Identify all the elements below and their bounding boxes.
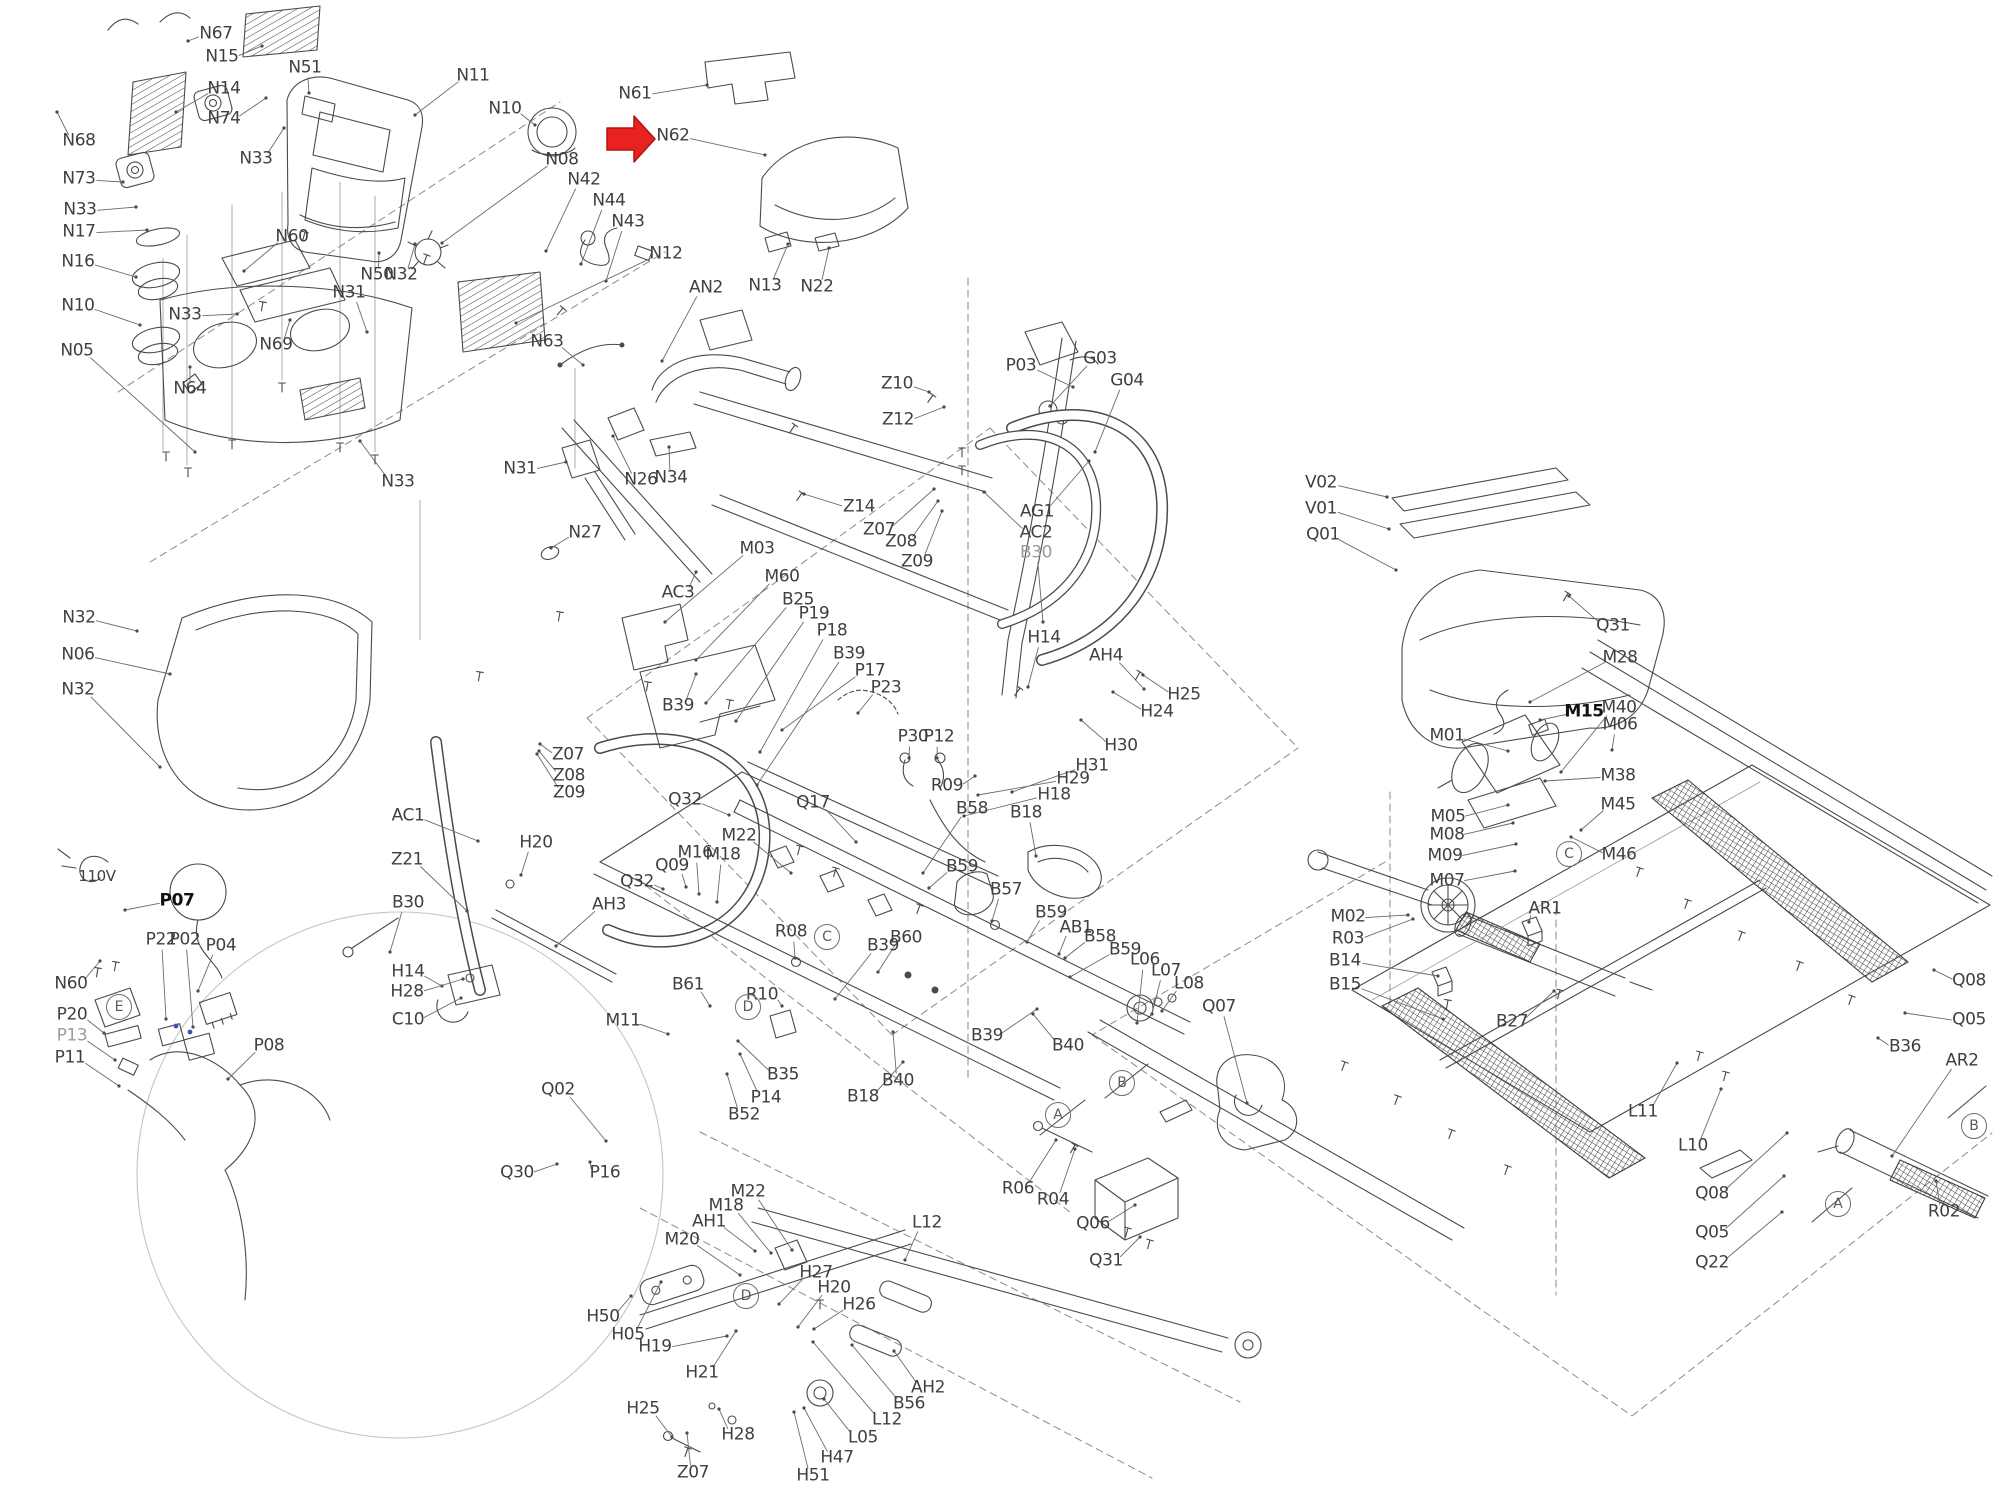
- part-label-q31: Q31: [1089, 1253, 1123, 1270]
- part-label-n32: N32: [62, 610, 95, 627]
- section-letter-a: A: [1045, 1102, 1071, 1128]
- part-label-n31: N31: [332, 285, 365, 302]
- part-label-m08: M08: [1429, 827, 1464, 844]
- part-label-m03: M03: [739, 541, 774, 558]
- part-label-q06: Q06: [1076, 1216, 1110, 1233]
- part-label-r03: R03: [1332, 931, 1364, 948]
- part-label-z09: Z09: [901, 554, 933, 571]
- part-label-b30: B30: [392, 895, 424, 912]
- part-label-p03: P03: [1006, 358, 1037, 375]
- section-letter-b: B: [1961, 1113, 1987, 1139]
- part-label-q17: Q17: [796, 795, 830, 812]
- part-label-l08: L08: [1174, 976, 1204, 993]
- part-label-h14: H14: [391, 964, 424, 981]
- part-label-z21: Z21: [391, 852, 423, 869]
- part-label-p11: P11: [55, 1050, 86, 1067]
- part-label-n06: N06: [61, 647, 94, 664]
- part-label-m11: M11: [605, 1013, 640, 1030]
- part-label-b61: B61: [672, 977, 704, 994]
- part-label-m46: M46: [1601, 847, 1636, 864]
- part-label-n61: N61: [618, 86, 651, 103]
- part-label-r04: R04: [1037, 1192, 1069, 1209]
- motor-deck-parts: [1088, 468, 1992, 1240]
- part-label-r02: R02: [1928, 1204, 1960, 1221]
- incline-frame-parts: [638, 1208, 1261, 1452]
- part-label-b36: B36: [1889, 1039, 1921, 1056]
- part-label-n64: N64: [173, 381, 206, 398]
- part-label-b14: B14: [1329, 953, 1361, 970]
- part-label-b60: B60: [890, 930, 922, 947]
- part-label-n22: N22: [800, 279, 833, 296]
- part-label-n27: N27: [568, 525, 601, 542]
- part-label-m60: M60: [764, 569, 799, 586]
- part-label-q08: Q08: [1952, 973, 1986, 990]
- part-label-b59: B59: [946, 859, 978, 876]
- section-letter-a: A: [1825, 1191, 1851, 1217]
- part-label-c10: C10: [392, 1012, 424, 1029]
- part-label-q08: Q08: [1695, 1186, 1729, 1203]
- part-label-n15: N15: [205, 49, 238, 66]
- part-label-n17: N17: [62, 224, 95, 241]
- part-label-h28: H28: [721, 1427, 754, 1444]
- part-label-v01: V01: [1305, 501, 1337, 518]
- part-label-z07: Z07: [677, 1465, 709, 1482]
- part-label-n33: N33: [239, 151, 272, 168]
- part-label-p12: P12: [924, 729, 955, 746]
- part-label-h26: H26: [842, 1297, 875, 1314]
- part-label-h50: H50: [586, 1309, 619, 1326]
- part-label-h51: H51: [796, 1468, 829, 1485]
- diagram-line-art: [0, 0, 1999, 1500]
- section-letter-d: D: [735, 994, 761, 1020]
- part-label-m15: M15: [1564, 704, 1603, 721]
- part-label-n33: N33: [381, 474, 414, 491]
- part-label-ah1: AH1: [692, 1214, 726, 1231]
- part-label-q09: Q09: [655, 858, 689, 875]
- part-label-l10: L10: [1678, 1138, 1708, 1155]
- part-label-ac3: AC3: [662, 585, 695, 602]
- part-label-q05: Q05: [1695, 1225, 1729, 1242]
- part-label-n68: N68: [62, 133, 95, 150]
- part-label-n74: N74: [207, 111, 240, 128]
- part-label-n51: N51: [288, 60, 321, 77]
- part-label-r08: R08: [775, 924, 807, 941]
- part-label-z10: Z10: [881, 376, 913, 393]
- part-label-b27: B27: [1496, 1014, 1528, 1031]
- part-label-n43: N43: [611, 214, 644, 231]
- screw-glyphs: [93, 231, 1855, 1458]
- part-label-n44: N44: [592, 193, 625, 210]
- part-label-p07: P07: [160, 893, 195, 910]
- part-label-h21: H21: [685, 1365, 718, 1382]
- part-label-n31: N31: [503, 461, 536, 478]
- part-label-z08: Z08: [885, 534, 917, 551]
- part-label-b39: B39: [662, 698, 694, 715]
- part-label-n60: N60: [275, 229, 308, 246]
- part-label-n13: N13: [748, 278, 781, 295]
- part-label-n60: N60: [54, 976, 87, 993]
- part-label-r06: R06: [1002, 1181, 1034, 1198]
- part-label-q07: Q07: [1202, 999, 1236, 1016]
- part-label-n10: N10: [61, 298, 94, 315]
- part-label-m06: M06: [1602, 717, 1637, 734]
- part-label-n32: N32: [61, 682, 94, 699]
- part-label-n05: N05: [60, 343, 93, 360]
- part-label-n62: N62: [656, 128, 689, 145]
- part-label-q22: Q22: [1695, 1255, 1729, 1272]
- exploded-parts-diagram: N67N15N51N14N74N33N68N73N33N17N16N10N05N…: [0, 0, 1999, 1500]
- part-label-z12: Z12: [882, 412, 914, 429]
- part-label-h30: H30: [1104, 738, 1137, 755]
- part-label-n12: N12: [649, 246, 682, 263]
- console-parts: [108, 6, 576, 810]
- part-label-h18: H18: [1037, 787, 1070, 804]
- section-letter-d: D: [733, 1283, 759, 1309]
- part-label-m22: M22: [721, 828, 756, 845]
- part-label-m07: M07: [1429, 873, 1464, 890]
- part-label-m28: M28: [1602, 650, 1637, 667]
- part-label-ac2: AC2: [1020, 525, 1053, 542]
- part-label-ah3: AH3: [592, 897, 626, 914]
- part-label-n10: N10: [488, 101, 521, 118]
- part-label-l12: L12: [912, 1215, 942, 1232]
- part-label-n42: N42: [567, 172, 600, 189]
- part-label-b15: B15: [1329, 977, 1361, 994]
- part-label-n26: N26: [624, 472, 657, 489]
- part-label-r09: R09: [931, 778, 963, 795]
- part-label-b40: B40: [882, 1073, 914, 1090]
- part-label-b18: B18: [1010, 805, 1042, 822]
- part-label-n34: N34: [654, 470, 687, 487]
- part-label-q02: Q02: [541, 1082, 575, 1099]
- electrical-parts: [58, 849, 330, 1300]
- part-label-h25: H25: [626, 1401, 659, 1418]
- part-label-q31: Q31: [1596, 618, 1630, 635]
- section-letter-e: E: [106, 994, 132, 1020]
- part-label-b18: B18: [847, 1089, 879, 1106]
- part-label-n14: N14: [207, 81, 240, 98]
- part-label-m01: M01: [1429, 728, 1464, 745]
- part-label-n32: N32: [384, 267, 417, 284]
- section-letter-b: B: [1109, 1070, 1135, 1096]
- part-label-n11: N11: [456, 68, 489, 85]
- part-label-b57: B57: [990, 882, 1022, 899]
- part-label-m45: M45: [1600, 797, 1635, 814]
- part-label-n73: N73: [62, 171, 95, 188]
- section-letter-c: C: [1556, 841, 1582, 867]
- part-label-p08: P08: [254, 1038, 285, 1055]
- highlight-arrow-icon: [607, 116, 655, 162]
- part-label-l11: L11: [1628, 1104, 1658, 1121]
- part-label-g03: G03: [1083, 351, 1117, 368]
- part-label-h19: H19: [638, 1339, 671, 1356]
- part-label-l05: L05: [848, 1430, 878, 1447]
- part-label-z07: Z07: [552, 747, 584, 764]
- part-label-q32: Q32: [620, 874, 654, 891]
- part-label-ar1: AR1: [1528, 901, 1561, 918]
- part-label-p13: P13: [57, 1028, 88, 1045]
- part-label-n33: N33: [168, 307, 201, 324]
- part-label-b52: B52: [728, 1107, 760, 1124]
- part-label-n67: N67: [199, 26, 232, 43]
- part-label-q01: Q01: [1306, 527, 1340, 544]
- part-label-h20: H20: [519, 835, 552, 852]
- part-label-b58: B58: [956, 801, 988, 818]
- part-label-h28: H28: [390, 984, 423, 1001]
- part-label-m09: M09: [1427, 848, 1462, 865]
- part-label-l12: L12: [872, 1412, 902, 1429]
- part-label-ah4: AH4: [1089, 648, 1123, 665]
- part-label-b40: B40: [1052, 1038, 1084, 1055]
- part-label-ar2: AR2: [1945, 1053, 1978, 1070]
- part-label-110v: 110V: [78, 869, 115, 884]
- part-label-n69: N69: [259, 337, 292, 354]
- part-label-p23: P23: [871, 680, 902, 697]
- part-label-v02: V02: [1305, 475, 1337, 492]
- part-label-h24: H24: [1140, 704, 1173, 721]
- part-label-m20: M20: [664, 1232, 699, 1249]
- part-label-p18: P18: [817, 623, 848, 640]
- part-label-h14: H14: [1027, 630, 1060, 647]
- part-label-b30: B30: [1020, 545, 1052, 562]
- part-label-q30: Q30: [500, 1165, 534, 1182]
- part-label-p04: P04: [206, 938, 237, 955]
- part-label-m05: M05: [1430, 809, 1465, 826]
- part-label-n16: N16: [61, 254, 94, 271]
- part-label-m38: M38: [1600, 768, 1635, 785]
- part-label-q05: Q05: [1952, 1012, 1986, 1029]
- part-label-p16: P16: [590, 1165, 621, 1182]
- part-label-b35: B35: [767, 1067, 799, 1084]
- part-label-ac1: AC1: [392, 808, 425, 825]
- part-label-n63: N63: [530, 334, 563, 351]
- part-label-p02: P02: [170, 932, 201, 949]
- part-label-z09: Z09: [553, 785, 585, 802]
- part-label-ag1: AG1: [1020, 504, 1054, 521]
- part-label-b39: B39: [971, 1028, 1003, 1045]
- part-label-n33: N33: [63, 202, 96, 219]
- part-label-n08: N08: [545, 152, 578, 169]
- part-label-z14: Z14: [843, 499, 875, 516]
- part-label-m02: M02: [1330, 909, 1365, 926]
- part-label-h47: H47: [820, 1450, 853, 1467]
- part-label-p20: P20: [57, 1007, 88, 1024]
- part-label-an2: AN2: [689, 280, 723, 297]
- main-frame-parts: [594, 762, 1986, 1240]
- part-label-g04: G04: [1110, 373, 1144, 390]
- part-label-m18: M18: [705, 847, 740, 864]
- part-label-q32: Q32: [668, 792, 702, 809]
- section-letter-c: C: [814, 924, 840, 950]
